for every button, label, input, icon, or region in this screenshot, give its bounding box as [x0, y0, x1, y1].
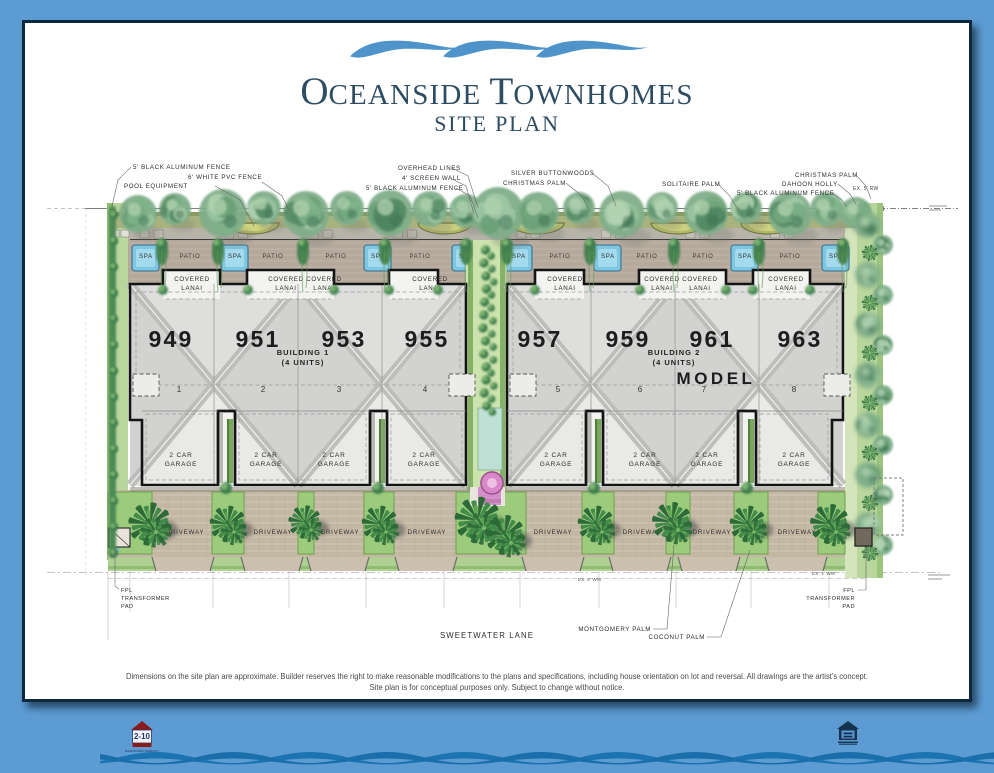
svg-text:DRIVEWAY: DRIVEWAY — [778, 529, 817, 536]
svg-text:959: 959 — [606, 326, 651, 352]
svg-text:COVERED: COVERED — [268, 276, 304, 283]
svg-text:7: 7 — [702, 385, 707, 394]
svg-text:Dimensions on the site plan ar: Dimensions on the site plan are approxim… — [126, 671, 868, 681]
svg-text:PAD: PAD — [121, 604, 134, 610]
svg-text:OVERHEAD LINES: OVERHEAD LINES — [398, 165, 461, 172]
svg-text:SPA: SPA — [738, 254, 752, 260]
svg-text:BUILDING 1: BUILDING 1 — [277, 348, 330, 357]
svg-text:PATIO: PATIO — [779, 254, 800, 260]
svg-text:5' BLACK ALUMINUM FENCE: 5' BLACK ALUMINUM FENCE — [737, 190, 835, 197]
svg-text:6: 6 — [638, 385, 643, 394]
svg-text:4: 4 — [423, 385, 428, 394]
svg-text:LANAI: LANAI — [651, 285, 672, 292]
svg-text:8: 8 — [792, 385, 797, 394]
svg-text:CHRISTMAS PALM: CHRISTMAS PALM — [503, 180, 566, 187]
svg-text:EX. 5′ RW: EX. 5′ RW — [853, 186, 879, 192]
svg-text:1: 1 — [177, 385, 182, 394]
svg-text:SITE PLAN: SITE PLAN — [434, 111, 560, 136]
svg-text:949: 949 — [149, 326, 194, 352]
svg-text:COVERED: COVERED — [412, 276, 448, 283]
svg-text:SPA: SPA — [601, 254, 615, 260]
svg-text:5: 5 — [556, 385, 561, 394]
svg-text:COCONUT PALM: COCONUT PALM — [649, 634, 705, 641]
svg-text:LANAI: LANAI — [275, 285, 296, 292]
svg-text:2: 2 — [261, 385, 266, 394]
svg-text:2 CAR: 2 CAR — [633, 452, 656, 459]
svg-text:4' SCREEN WALL: 4' SCREEN WALL — [402, 175, 461, 182]
svg-text:2-10: 2-10 — [134, 732, 151, 741]
svg-text:COVERED: COVERED — [547, 276, 583, 283]
svg-text:5' BLACK ALUMINUM FENCE: 5' BLACK ALUMINUM FENCE — [366, 185, 464, 192]
svg-text:957: 957 — [518, 326, 563, 352]
svg-text:GARAGE: GARAGE — [318, 461, 351, 468]
svg-text:2 CAR: 2 CAR — [782, 452, 805, 459]
svg-text:963: 963 — [778, 326, 823, 352]
svg-text:2 CAR: 2 CAR — [412, 452, 435, 459]
svg-text:PATIO: PATIO — [179, 254, 200, 260]
svg-text:LANAI: LANAI — [554, 285, 575, 292]
svg-text:POOL EQUIPMENT: POOL EQUIPMENT — [124, 183, 188, 190]
svg-text:COVERED: COVERED — [644, 276, 680, 283]
svg-text:PAD: PAD — [842, 604, 855, 610]
svg-text:GARAGE: GARAGE — [165, 461, 198, 468]
svg-text:EX. 4′ WM: EX. 4′ WM — [812, 571, 835, 576]
svg-text:MODEL: MODEL — [677, 369, 756, 388]
svg-text:2 CAR: 2 CAR — [544, 452, 567, 459]
svg-text:TRANSFORMER: TRANSFORMER — [806, 596, 855, 602]
svg-text:2 CAR: 2 CAR — [695, 452, 718, 459]
svg-text:LANAI: LANAI — [775, 285, 796, 292]
svg-text:FPL: FPL — [843, 588, 855, 594]
svg-text:DAHOON HOLLY: DAHOON HOLLY — [782, 181, 838, 188]
svg-text:(4 UNITS): (4 UNITS) — [282, 358, 325, 367]
svg-text:PATIO: PATIO — [325, 254, 346, 260]
svg-text:GARAGE: GARAGE — [408, 461, 441, 468]
svg-text:DRIVEWAY: DRIVEWAY — [693, 529, 732, 536]
svg-text:SPA: SPA — [139, 254, 153, 260]
svg-text:PATIO: PATIO — [636, 254, 657, 260]
svg-text:SPA: SPA — [512, 254, 526, 260]
svg-text:Site plan is for conceptual pu: Site plan is for conceptual purposes onl… — [370, 682, 625, 692]
svg-text:CHRISTMAS PALM: CHRISTMAS PALM — [795, 172, 858, 179]
svg-text:FPL: FPL — [121, 588, 133, 594]
svg-text:COVERED: COVERED — [174, 276, 210, 283]
svg-text:5' BLACK ALUMINUM FENCE: 5' BLACK ALUMINUM FENCE — [133, 164, 231, 171]
svg-text:SPA: SPA — [228, 254, 242, 260]
svg-text:PATIO: PATIO — [549, 254, 570, 260]
svg-text:TRANSFORMER: TRANSFORMER — [121, 596, 170, 602]
svg-text:DRIVEWAY: DRIVEWAY — [408, 529, 447, 536]
svg-text:EX. 6′ WM: EX. 6′ WM — [578, 577, 601, 582]
svg-text:(4 UNITS): (4 UNITS) — [653, 358, 696, 367]
svg-text:DRIVEWAY: DRIVEWAY — [534, 529, 573, 536]
svg-text:LANAI: LANAI — [181, 285, 202, 292]
svg-text:BUILDING 2: BUILDING 2 — [648, 348, 701, 357]
svg-text:955: 955 — [405, 326, 450, 352]
svg-text:SILVER BUTTONWOODS: SILVER BUTTONWOODS — [511, 170, 594, 177]
svg-text:2 CAR: 2 CAR — [322, 452, 345, 459]
svg-text:GARAGE: GARAGE — [691, 461, 724, 468]
svg-text:6' WHITE PVC FENCE: 6' WHITE PVC FENCE — [188, 174, 262, 181]
svg-text:LANAI: LANAI — [689, 285, 710, 292]
svg-text:COVERED: COVERED — [682, 276, 718, 283]
svg-text:MONTGOMERY PALM: MONTGOMERY PALM — [578, 626, 651, 633]
svg-text:PATIO: PATIO — [692, 254, 713, 260]
svg-text:SOLITAIRE PALM: SOLITAIRE PALM — [662, 181, 720, 188]
svg-text:3: 3 — [337, 385, 342, 394]
svg-text:PATIO: PATIO — [262, 254, 283, 260]
svg-text:951: 951 — [236, 326, 281, 352]
svg-text:GARAGE: GARAGE — [250, 461, 283, 468]
svg-text:COVERED: COVERED — [306, 276, 342, 283]
svg-text:PATIO: PATIO — [409, 254, 430, 260]
svg-text:GARAGE: GARAGE — [778, 461, 811, 468]
svg-text:GARAGE: GARAGE — [629, 461, 662, 468]
svg-text:2 CAR: 2 CAR — [169, 452, 192, 459]
svg-text:DRIVEWAY: DRIVEWAY — [254, 529, 293, 536]
svg-text:SWEETWATER LANE: SWEETWATER LANE — [440, 631, 534, 640]
svg-text:2 CAR: 2 CAR — [254, 452, 277, 459]
svg-text:GARAGE: GARAGE — [540, 461, 573, 468]
svg-text:COVERED: COVERED — [768, 276, 804, 283]
